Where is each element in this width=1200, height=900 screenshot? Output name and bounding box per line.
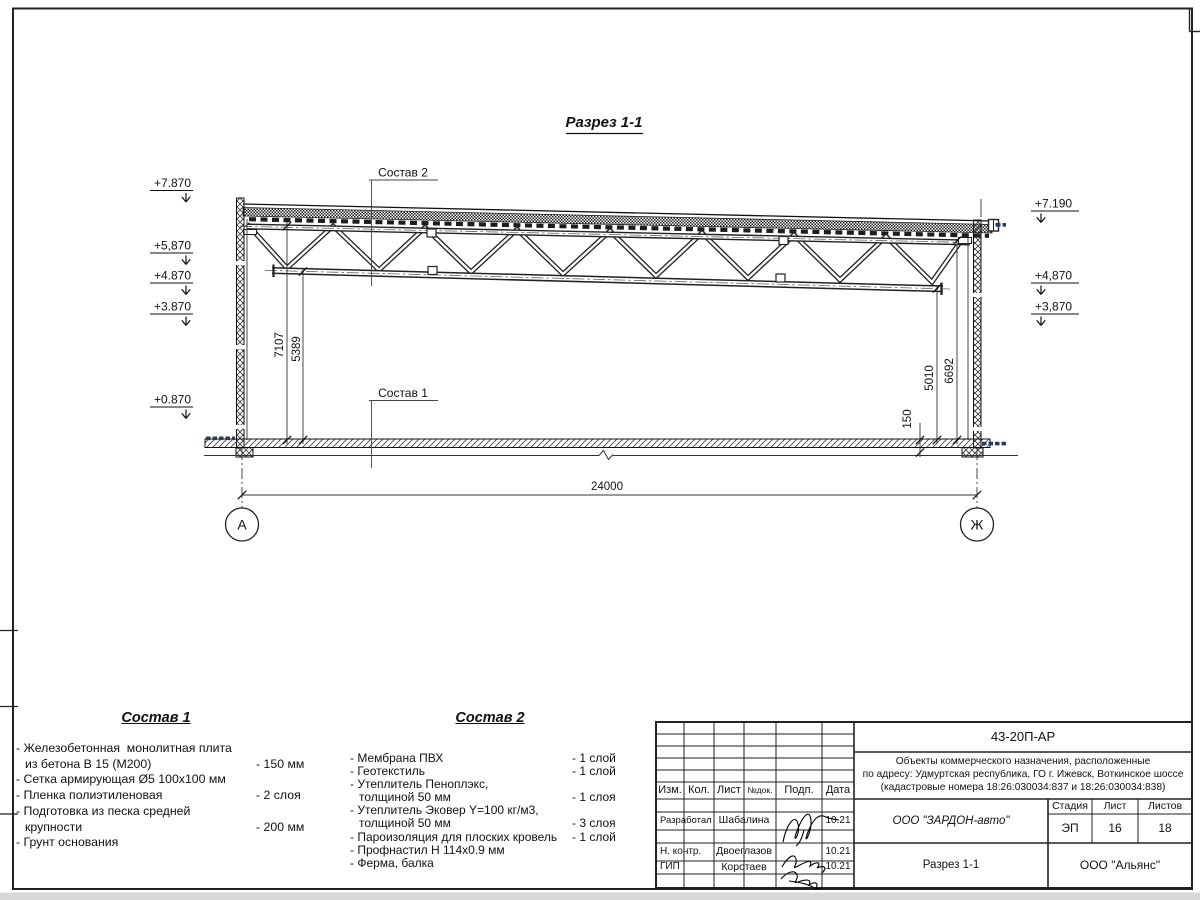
composition-line: - Пароизоляция для плоских кровель - 1 с…	[350, 831, 622, 844]
wall-right	[974, 220, 982, 448]
elevation-label: +0.870	[154, 393, 191, 407]
elevation-label: +7.190	[1035, 197, 1072, 211]
page-edge	[0, 893, 1200, 900]
dim-5010: 5010	[924, 365, 936, 391]
title-block: Изм. Кол. Лист №док. Подп. Дата Разработ…	[655, 721, 1193, 889]
tb-name-gip: Коротаев	[712, 861, 776, 874]
tb-col-list: Лист	[714, 782, 744, 799]
tb-name-ncontrol: Двоеглазов	[712, 843, 776, 861]
tb-date-developer: 10.21	[822, 812, 854, 830]
elevation-label: +3.870	[154, 300, 191, 314]
composition-line: - Грунт основания	[16, 835, 314, 851]
composition-line: из бетона В 15 (М200) - 150 мм	[16, 757, 314, 773]
purlin-clip	[428, 267, 437, 275]
composition-line: толщиной 50 мм - 3 слоя	[350, 817, 622, 830]
tb-name-developer: Шабалина	[712, 812, 776, 830]
tb-stage-label: Стадия	[1048, 799, 1092, 814]
tb-role-ncontrol: Н. контр.	[657, 843, 716, 861]
composition2-list: - Мембрана ПВХ - 1 слой - Геотекстиль - …	[350, 752, 622, 870]
purlin-clip	[427, 229, 436, 237]
tb-col-ndok: №док.	[744, 782, 776, 799]
tb-col-kol: Кол.	[684, 782, 714, 799]
composition2-heading: Состав 2	[430, 710, 550, 726]
floor-slab	[204, 438, 1018, 460]
signature-ncontrol	[782, 856, 825, 873]
dimensions	[238, 222, 981, 508]
roof-truss	[240, 224, 977, 295]
purlin-clip	[779, 237, 788, 245]
composition-line: - Сетка армирующая Ø5 100х100 мм	[16, 772, 314, 788]
composition-line: крупности - 200 мм	[16, 820, 314, 836]
axis-markers	[226, 508, 994, 541]
tb-company: ООО "ЗАРДОН-авто"	[854, 799, 1048, 843]
composition-line: - Профнастил Н 114х0.9 мм	[350, 844, 622, 857]
tb-role-gip: ГИП	[657, 861, 716, 874]
tb-sheets-value: 18	[1138, 814, 1192, 843]
elevation-label: +3,870	[1035, 300, 1072, 314]
leader-label-sostav2: Состав 2	[378, 166, 428, 180]
tb-section-name: Разрез 1-1	[854, 843, 1048, 888]
dim-7107: 7107	[274, 332, 286, 358]
elevation-label: +4.870	[154, 269, 191, 283]
drawing-sheet: Разрез 1-1	[0, 0, 1200, 900]
tb-col-data: Дата	[822, 782, 854, 799]
tb-sheets-label: Листов	[1138, 799, 1192, 814]
dim-5389: 5389	[291, 336, 303, 362]
tb-address: Объекты коммерческого назначения, распол…	[854, 752, 1192, 799]
tb-stage-value: ЭП	[1048, 814, 1092, 843]
purlin-clip	[776, 274, 785, 282]
elevation-label: +4,870	[1035, 269, 1072, 283]
tb-address-line2: по адресу: Удмуртская республика, ГО г. …	[863, 769, 1184, 782]
tb-date-gip: 10.21	[822, 861, 854, 874]
tb-col-podp: Подп.	[776, 782, 822, 799]
composition-line: - Подготовка из песка средней	[16, 804, 314, 820]
tb-sheet-value: 16	[1092, 814, 1138, 843]
composition-line: - Ферма, балка	[350, 857, 622, 870]
truss-support-left	[244, 230, 257, 235]
composition1-list: - Железобетонная монолитная плита из бет…	[16, 741, 314, 851]
composition-line: - Железобетонная монолитная плита	[16, 741, 314, 757]
elevation-label: +5,870	[154, 239, 191, 253]
elevation-label: +7.870	[154, 176, 191, 190]
tb-firm: ООО "Альянс"	[1048, 843, 1192, 888]
tb-role-developer: Разработал	[657, 812, 716, 830]
tb-address-line1: Объекты коммерческого назначения, распол…	[896, 756, 1151, 769]
composition1-heading: Состав 1	[96, 710, 216, 726]
axis-label-zh: Ж	[971, 517, 984, 533]
axis-label-a: А	[237, 517, 247, 533]
tb-col-izm: Изм.	[656, 782, 684, 799]
dim-150: 150	[902, 409, 914, 428]
dim-6692: 6692	[944, 358, 956, 384]
wall-left	[237, 198, 245, 448]
tb-date-ncontrol: 10.21	[822, 843, 854, 861]
leader-label-sostav1: Состав 1	[378, 386, 428, 400]
composition-line: - Пленка полиэтиленовая - 2 слоя	[16, 788, 314, 804]
tb-sheet-label: Лист	[1092, 799, 1138, 814]
view-title: Разрез 1-1	[565, 114, 642, 131]
tb-doc-number: 43-20П-АР	[854, 722, 1192, 752]
truss-support-right	[959, 238, 972, 244]
tb-address-line3: (кадастровые номера 18:26:030034:837 и 1…	[881, 782, 1166, 795]
dim-24000: 24000	[591, 481, 623, 493]
